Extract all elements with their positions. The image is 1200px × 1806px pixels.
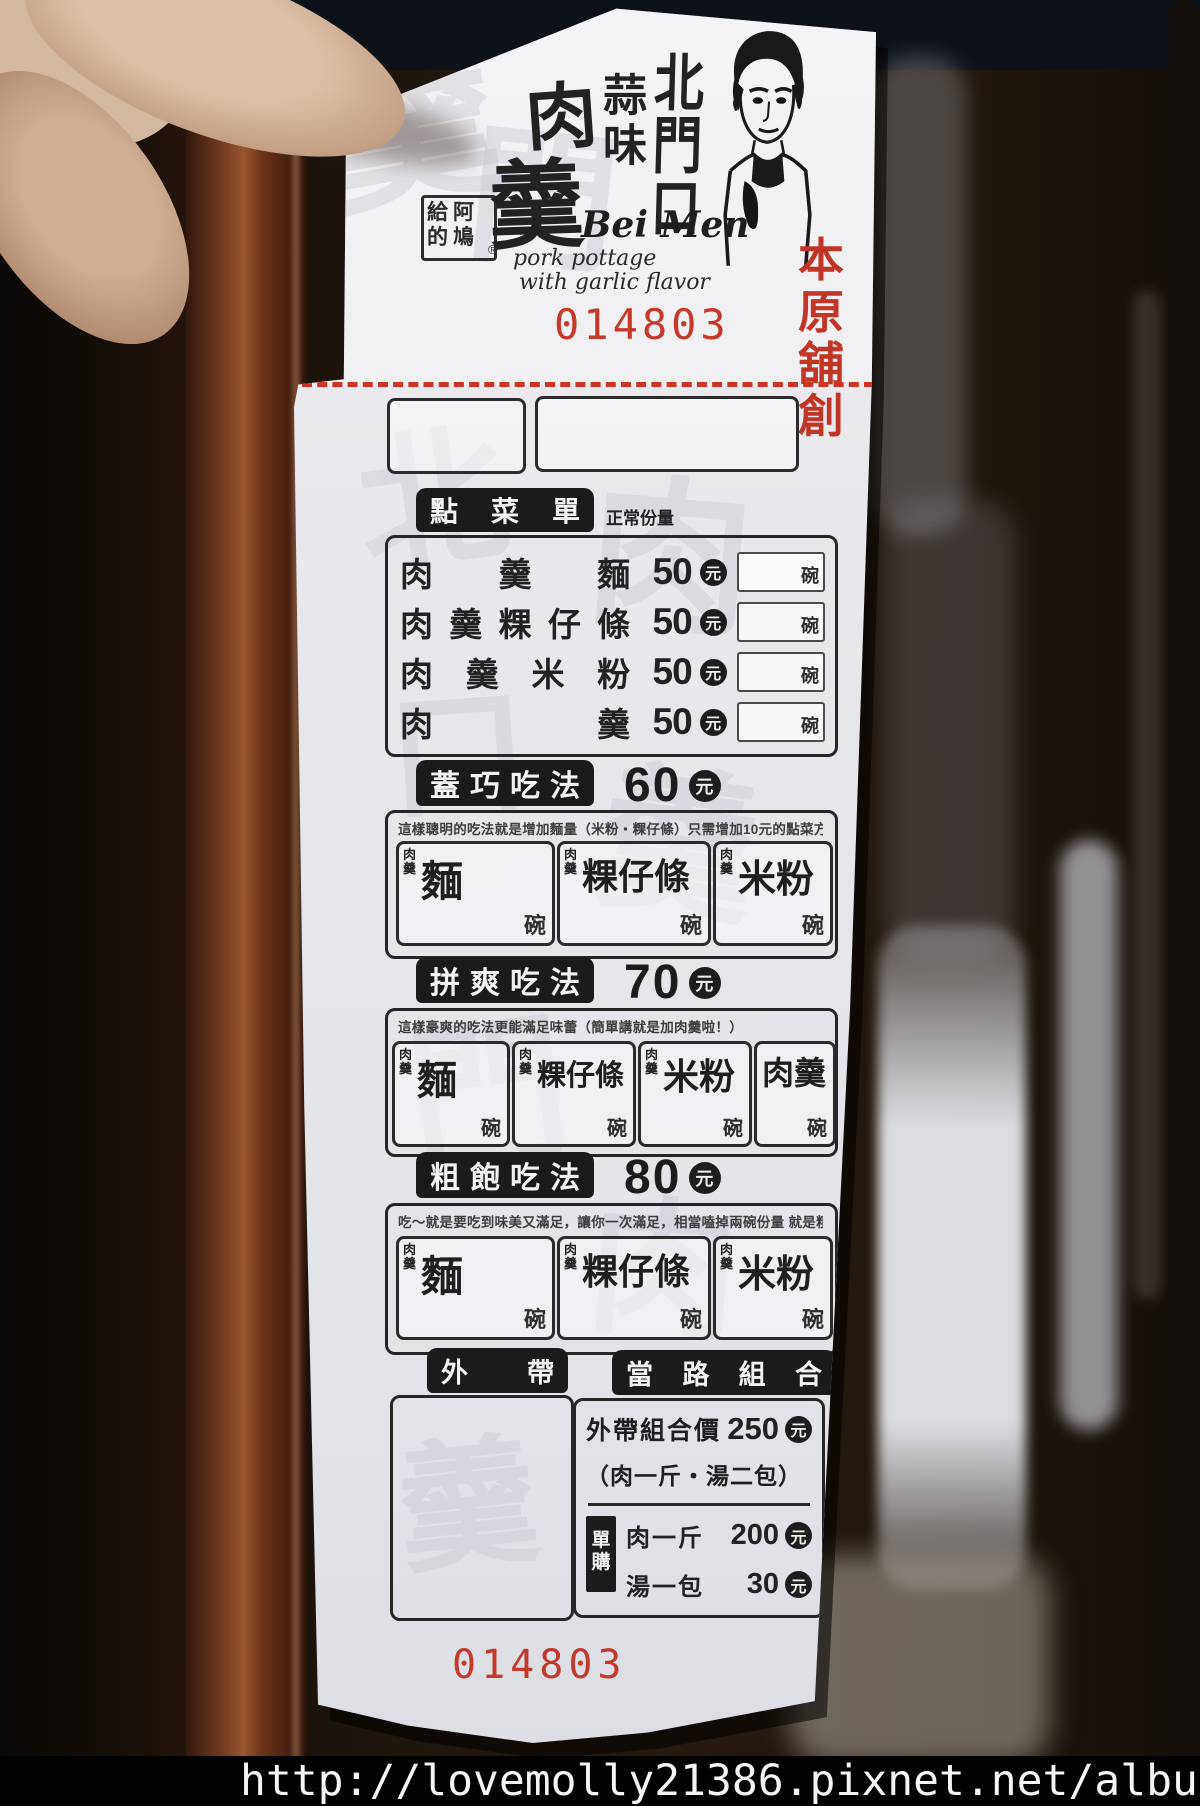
bowl-unit: 碗 xyxy=(723,1112,743,1141)
seal-row: 的鳩 xyxy=(427,225,491,250)
style-section-header: 蓋巧吃法 xyxy=(416,760,594,806)
yuan-badge: 元 xyxy=(700,609,727,636)
quantity-box: 碗 xyxy=(737,702,825,742)
single-item-name: 湯一包 xyxy=(626,1567,704,1602)
section-title: 蓋巧吃法 xyxy=(430,761,580,805)
section-title: 粗飽吃法 xyxy=(430,1153,580,1197)
seal-row: 給阿 xyxy=(427,200,491,225)
quantity-box: 碗 xyxy=(737,552,825,592)
bowl-unit: 碗 xyxy=(607,1112,627,1141)
price-value: 70 xyxy=(624,955,681,1010)
yuan-badge: 元 xyxy=(700,659,727,686)
option-prefix: 肉羹 xyxy=(564,1243,579,1271)
takeout-title: 外帶 xyxy=(441,1351,554,1390)
option-box: 肉羹 粿仔條 碗 xyxy=(557,1236,711,1340)
yuan-badge: 元 xyxy=(785,1571,812,1598)
bowl-unit: 碗 xyxy=(802,1302,824,1334)
single-purchase-label: 單購 xyxy=(586,1516,616,1592)
door-reflection xyxy=(885,500,1015,960)
option-label: 肉羹 xyxy=(762,1048,826,1094)
option-prefix: 肉羹 xyxy=(403,1243,418,1271)
photo-watermark-bar: http://lovemolly21386.pixnet.net/album xyxy=(0,1756,1200,1806)
bowl-unit: 碗 xyxy=(801,662,819,688)
option-prefix: 肉羹 xyxy=(564,848,579,876)
option-prefix: 肉羹 xyxy=(519,1048,534,1076)
yuan-badge: 元 xyxy=(689,770,721,802)
order-menu-header: 點菜單 xyxy=(416,488,594,532)
section-description: 這樣豪爽的吃法更能滿足味蕾（簡單講就是加肉羹啦！） xyxy=(398,1016,823,1036)
brand-latin-name: Bei Men xyxy=(581,204,749,246)
section-description: 吃～就是要吃到味美又滿足，讓你一次滿足，相當嗑掉兩碗份量 就是粗飽啦！ xyxy=(398,1211,823,1231)
quantity-box: 碗 xyxy=(737,652,825,692)
option-box: 肉羹 米粉 碗 xyxy=(713,1236,833,1340)
yuan-badge: 元 xyxy=(700,559,727,586)
option-box: 肉羹 粿仔條 碗 xyxy=(557,841,711,946)
item-name: 肉羹 xyxy=(400,698,630,746)
option-box: 肉羹 碗 xyxy=(754,1041,836,1147)
door-trim-highlight xyxy=(292,0,300,1806)
bowl-unit: 碗 xyxy=(801,612,819,638)
yuan-badge: 元 xyxy=(700,709,727,736)
yuan-badge: 元 xyxy=(785,1522,812,1549)
stamp-row: 本原 xyxy=(776,234,876,338)
bowl-unit: 碗 xyxy=(680,1302,702,1334)
option-prefix: 肉羹 xyxy=(645,1048,660,1076)
style-section-header: 拼爽吃法 xyxy=(416,957,594,1003)
bowl-unit: 碗 xyxy=(680,908,702,940)
brand-latin-subtitle: with garlic flavor xyxy=(519,270,710,295)
menu-row: 肉羹粿仔條 50 元 碗 xyxy=(400,602,825,642)
receipt-paper: 羹 門 北 肉 口 羹 門 肉 羹 給阿 的鳩 ® 肉 羹 蒜味 北門口 xyxy=(288,6,888,1750)
price-value: 60 xyxy=(624,758,681,813)
single-row: 湯一包 30 元 xyxy=(626,1567,812,1602)
style-section-box: 這樣豪爽的吃法更能滿足味蕾（簡單講就是加肉羹啦！） 肉羹 麵 碗 肉羹 粿仔條 … xyxy=(385,1008,838,1157)
option-label: 麵 xyxy=(421,1243,463,1304)
option-box: 肉羹 米粉 碗 xyxy=(713,841,833,946)
bowl-unit: 碗 xyxy=(524,1302,546,1334)
combo-title: 當路組合 xyxy=(626,1353,822,1392)
single-item-price: 30 xyxy=(747,1568,779,1601)
section-price: 60 元 xyxy=(624,758,721,813)
section-price: 80 元 xyxy=(624,1150,721,1205)
option-box: 肉羹 麵 碗 xyxy=(392,1041,510,1147)
bowl-unit: 碗 xyxy=(801,562,819,588)
photo-scene: 羹 門 北 肉 口 羹 門 肉 羹 給阿 的鳩 ® 肉 羹 蒜味 北門口 xyxy=(0,0,1200,1806)
option-box: 肉羹 米粉 碗 xyxy=(638,1041,752,1147)
option-label: 米粉 xyxy=(663,1048,735,1100)
bowl-unit: 碗 xyxy=(481,1112,501,1141)
combo-header: 當路組合 xyxy=(612,1350,836,1395)
option-label: 麵 xyxy=(421,848,463,909)
section-description: 這樣聰明的吃法就是增加麵量（米粉・粿仔條）只需增加10元的點菜方式！ xyxy=(398,818,823,838)
yuan-badge: 元 xyxy=(689,967,721,999)
style-section-box: 吃～就是要吃到味美又滿足，讓你一次滿足，相當嗑掉兩碗份量 就是粗飽啦！ 肉羹 麵… xyxy=(385,1203,838,1355)
serial-number-top: 014803 xyxy=(554,300,730,349)
item-price: 50 xyxy=(630,601,692,643)
combo-price-value: 250 xyxy=(727,1411,779,1447)
option-label: 粿仔條 xyxy=(537,1052,624,1094)
section-title: 拼爽吃法 xyxy=(430,958,580,1002)
menu-row: 肉羹米粉 50 元 碗 xyxy=(400,652,825,692)
option-label: 麵 xyxy=(417,1048,457,1106)
single-item-name: 肉一斤 xyxy=(626,1518,704,1553)
option-label: 粿仔條 xyxy=(582,848,690,900)
single-item-price: 200 xyxy=(731,1519,779,1552)
door-edge-dark xyxy=(1168,0,1200,1806)
bowl-unit: 碗 xyxy=(524,908,546,940)
receipt-content: 給阿 的鳩 ® 肉 羹 蒜味 北門口 xyxy=(288,6,888,1750)
item-name: 肉羹米粉 xyxy=(400,648,630,696)
price-value: 80 xyxy=(624,1150,681,1205)
brand-latin-subtitle: pork pottage xyxy=(513,246,656,271)
tear-line xyxy=(302,382,874,387)
item-name: 肉羹粿仔條 xyxy=(400,598,630,646)
item-price: 50 xyxy=(630,701,692,743)
brand-seal: 給阿 的鳩 xyxy=(421,195,497,261)
yuan-badge: 元 xyxy=(689,1162,721,1194)
option-prefix: 肉羹 xyxy=(720,848,735,876)
menu-row: 肉羹麵 50 元 碗 xyxy=(400,552,825,592)
option-box: 肉羹 粿仔條 碗 xyxy=(512,1041,636,1147)
menu-row: 肉羹 50 元 碗 xyxy=(400,702,825,742)
door-reflection-bright xyxy=(878,925,1026,1590)
option-box: 肉羹 麵 碗 xyxy=(396,1236,555,1340)
section-price: 70 元 xyxy=(624,955,721,1010)
yuan-badge: 元 xyxy=(785,1416,812,1443)
combo-box: 外帶組合價 250 元 （肉一斤・湯二包） 單購 肉一斤 200 元 xyxy=(573,1398,825,1618)
option-prefix: 肉羹 xyxy=(720,1243,735,1271)
blank-field-small xyxy=(387,398,526,474)
door-reflection xyxy=(1133,290,1161,1300)
takeout-header: 外帶 xyxy=(427,1348,568,1393)
item-name: 肉羹麵 xyxy=(400,548,630,596)
option-box: 肉羹 麵 碗 xyxy=(396,841,555,946)
style-section-box: 這樣聰明的吃法就是增加麵量（米粉・粿仔條）只需增加10元的點菜方式！ 肉羹 麵 … xyxy=(385,810,838,959)
option-prefix: 肉羹 xyxy=(399,1048,414,1076)
order-menu-box: 肉羹麵 50 元 碗 肉羹粿仔條 50 元 碗 肉羹米粉 50 元 碗 xyxy=(385,535,838,757)
combo-divider xyxy=(588,1503,810,1506)
option-label: 米粉 xyxy=(738,1243,814,1298)
takeout-blank-box xyxy=(390,1395,574,1621)
serial-number-bottom: 014803 xyxy=(452,1642,627,1688)
option-label: 粿仔條 xyxy=(582,1243,690,1295)
single-purchase-rows: 肉一斤 200 元 湯一包 30 元 xyxy=(626,1518,812,1602)
bowl-unit: 碗 xyxy=(802,908,824,940)
door-reflection xyxy=(1060,840,1118,1430)
photo-watermark-url: http://lovemolly21386.pixnet.net/album xyxy=(240,1756,1200,1806)
bowl-unit: 碗 xyxy=(807,1112,827,1141)
combo-price-row: 外帶組合價 250 元 xyxy=(586,1411,812,1447)
bowl-unit: 碗 xyxy=(801,712,819,738)
option-prefix: 肉羹 xyxy=(403,848,418,876)
style-section-header: 粗飽吃法 xyxy=(416,1152,594,1198)
portion-note: 正常份量 xyxy=(606,504,674,529)
single-purchase-area: 單購 肉一斤 200 元 湯一包 30 元 xyxy=(586,1516,812,1602)
option-label: 米粉 xyxy=(738,848,814,903)
single-row: 肉一斤 200 元 xyxy=(626,1518,812,1553)
order-menu-title: 點菜單 xyxy=(430,490,580,530)
item-price: 50 xyxy=(630,551,692,593)
combo-note: （肉一斤・湯二包） xyxy=(586,1457,812,1491)
item-price: 50 xyxy=(630,651,692,693)
quantity-box: 碗 xyxy=(737,602,825,642)
blank-field-large xyxy=(535,396,799,472)
combo-price-label: 外帶組合價 xyxy=(586,1411,721,1447)
door-trim-strip xyxy=(186,0,306,1806)
